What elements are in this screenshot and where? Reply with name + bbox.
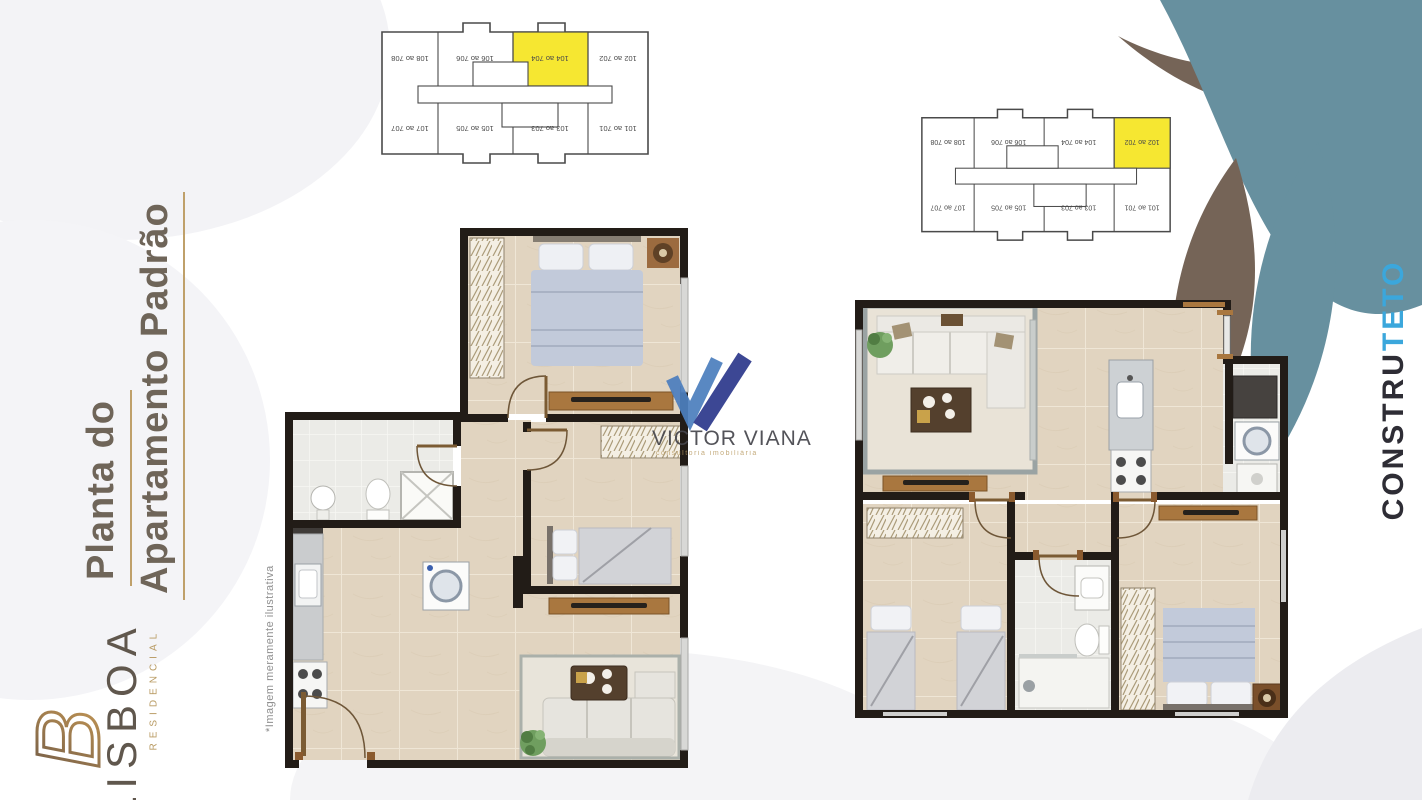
page-title: Planta do Apartamento Padrão bbox=[78, 150, 190, 600]
hall-floor bbox=[461, 420, 531, 528]
unit-label: 102 ao 702 bbox=[1125, 138, 1160, 145]
double-bed bbox=[1163, 608, 1255, 682]
unit-label: 101 ao 701 bbox=[1125, 204, 1160, 211]
window bbox=[1224, 316, 1230, 356]
living-room bbox=[520, 656, 679, 758]
developer-name: LISBOA bbox=[98, 630, 146, 800]
toilet-tank bbox=[1099, 626, 1109, 654]
sliding-door bbox=[1030, 320, 1036, 460]
watermark-subtitle: consultoria imobiliária bbox=[656, 450, 806, 457]
basin bbox=[1081, 578, 1103, 598]
pillow bbox=[871, 606, 911, 630]
wardrobe bbox=[867, 508, 963, 538]
shower-drain bbox=[1023, 680, 1035, 692]
unit-label: 105 ao 705 bbox=[456, 124, 494, 133]
wardrobe bbox=[1121, 588, 1155, 710]
brand-part2: TETO bbox=[1377, 260, 1410, 351]
unit-label: 108 ao 708 bbox=[391, 54, 429, 63]
toilet-tank bbox=[367, 510, 389, 520]
bg-blob bbox=[0, 0, 390, 240]
wardrobe bbox=[470, 238, 504, 378]
pillow bbox=[1167, 682, 1207, 706]
stove bbox=[1111, 450, 1151, 492]
unit-label: 103 ao 703 bbox=[531, 124, 569, 133]
floorplan-right bbox=[853, 290, 1288, 728]
developer-tagline: RESIDENCIAL bbox=[149, 641, 162, 751]
stove bbox=[293, 662, 327, 708]
window bbox=[883, 712, 947, 716]
balcony-living bbox=[865, 306, 1036, 472]
toilet bbox=[366, 479, 390, 509]
window bbox=[681, 638, 688, 750]
unit-label: 107 ao 707 bbox=[930, 204, 965, 211]
sofa bbox=[877, 332, 987, 374]
pedestal-sink bbox=[311, 486, 335, 510]
unit-label: 103 ao 703 bbox=[1061, 204, 1096, 211]
unit-label: 104 ao 704 bbox=[1061, 138, 1096, 145]
pillow bbox=[539, 244, 583, 270]
entry-door-leaf bbox=[301, 692, 306, 756]
toilet bbox=[1075, 624, 1099, 656]
disclaimer: *Imagem meramente ilustrativa bbox=[264, 582, 280, 732]
single-bed bbox=[579, 528, 671, 584]
tv bbox=[1183, 510, 1239, 515]
window bbox=[681, 466, 688, 556]
window bbox=[856, 330, 862, 440]
window bbox=[1175, 712, 1239, 716]
unit-label: 104 ao 704 bbox=[531, 54, 569, 63]
unit-label: 107 ao 707 bbox=[391, 124, 429, 133]
cabinet bbox=[1233, 376, 1277, 418]
unit-label: 106 ao 706 bbox=[991, 138, 1026, 145]
keyplan-unit-104: 108 ao 708 106 ao 706 104 ao 704 102 ao … bbox=[374, 14, 656, 164]
unit-label: 102 ao 702 bbox=[599, 54, 637, 63]
pillow bbox=[553, 530, 577, 554]
lintel bbox=[1217, 354, 1233, 359]
floorplan-left bbox=[283, 226, 693, 774]
unit-label: 105 ao 705 bbox=[991, 204, 1026, 211]
unit-label: 108 ao 708 bbox=[930, 138, 965, 145]
pillow bbox=[553, 556, 577, 580]
bed-headboard bbox=[547, 526, 553, 584]
tray bbox=[941, 314, 963, 326]
realtor-watermark: VICTOR VIANA consultoria imobiliária bbox=[640, 345, 815, 457]
page-title-line2: Apartamento Padrão bbox=[132, 192, 186, 600]
kitchen-floor bbox=[293, 528, 523, 760]
page-title-line1: Planta do bbox=[78, 390, 132, 586]
island-sink bbox=[1117, 382, 1143, 418]
lintel bbox=[1217, 310, 1233, 315]
bed-headboard bbox=[1163, 704, 1255, 710]
watermark-name: VICTOR VIANA bbox=[652, 427, 812, 451]
window bbox=[1281, 530, 1286, 602]
keyplan-unit-102: 108 ao 708 106 ao 706 104 ao 704 102 ao … bbox=[905, 101, 1187, 241]
tv bbox=[571, 603, 647, 608]
slide: Planta do Apartamento Padrão 108 ao 708 … bbox=[0, 0, 1422, 800]
double-bed bbox=[531, 270, 643, 366]
tv bbox=[571, 397, 651, 402]
unit-label: 101 ao 701 bbox=[599, 124, 637, 133]
pillow bbox=[1211, 682, 1251, 706]
pillow bbox=[961, 606, 1001, 630]
unit-label: 106 ao 706 bbox=[456, 54, 494, 63]
service-area bbox=[1233, 376, 1279, 494]
shower-glass bbox=[1019, 654, 1077, 658]
chaise bbox=[635, 672, 675, 698]
tv bbox=[903, 480, 969, 485]
pillow bbox=[589, 244, 633, 270]
builder-brand: CONSTRUTETO bbox=[1377, 240, 1411, 540]
kitchen bbox=[1109, 360, 1153, 492]
lintel bbox=[1183, 302, 1225, 307]
brand-part1: CONSTRU bbox=[1377, 351, 1410, 520]
